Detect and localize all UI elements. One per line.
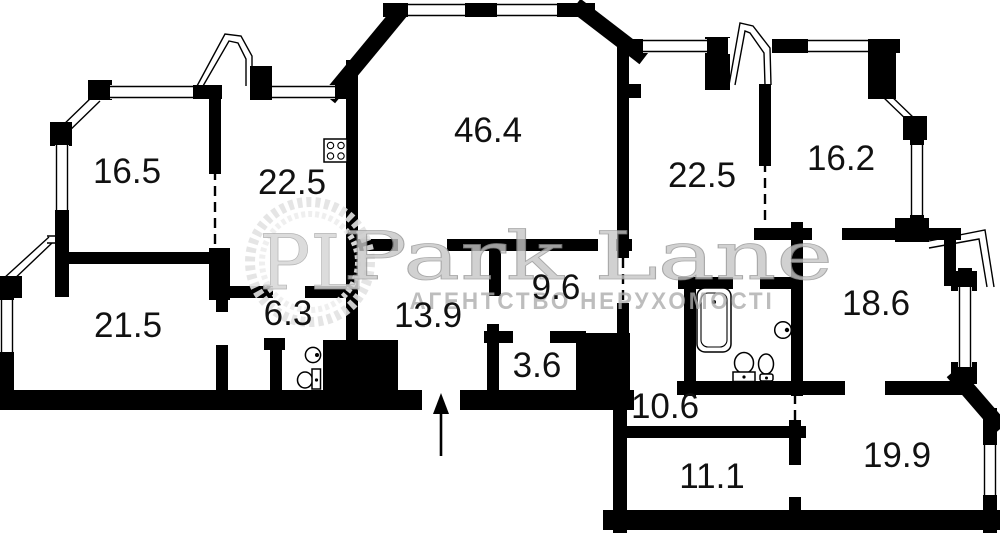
room-area-label: 16.2 <box>807 139 875 178</box>
room-area-label: 22.5 <box>668 156 736 195</box>
room-area-label: 3.6 <box>513 346 562 385</box>
toilet-icon <box>759 354 774 381</box>
stove-icon <box>324 139 347 162</box>
room-area-label: 19.9 <box>863 436 931 475</box>
pedestal-sink-icon <box>733 353 755 382</box>
room-area-label: 46.4 <box>454 111 522 150</box>
room-area-label: 11.1 <box>679 457 745 496</box>
wc-sink-icon <box>305 347 320 362</box>
floor-plan-canvas: PL Park Lane АГЕНТСТВО НЕРУХОМОСТІ 16.5 … <box>0 0 1000 533</box>
floor-plan: PL Park Lane АГЕНТСТВО НЕРУХОМОСТІ 16.5 … <box>0 0 1000 533</box>
watermark-subtitle-text: АГЕНТСТВО НЕРУХОМОСТІ <box>410 288 775 315</box>
room-area-label: 10.6 <box>631 387 699 426</box>
watermark-brand-text: Park Lane <box>343 218 833 295</box>
room-area-label: 16.5 <box>93 152 161 191</box>
entrance-arrow-icon <box>433 393 449 456</box>
room-area-label: 21.5 <box>94 306 162 345</box>
round-wall-sink-icon <box>775 322 792 339</box>
room-area-label: 22.5 <box>258 163 326 202</box>
room-area-label: 13.9 <box>394 296 462 335</box>
wc-toilet-icon <box>298 369 321 389</box>
room-area-label: 9.6 <box>532 268 581 307</box>
room-area-label: 18.6 <box>842 284 910 323</box>
room-area-label: 6.3 <box>264 294 313 333</box>
